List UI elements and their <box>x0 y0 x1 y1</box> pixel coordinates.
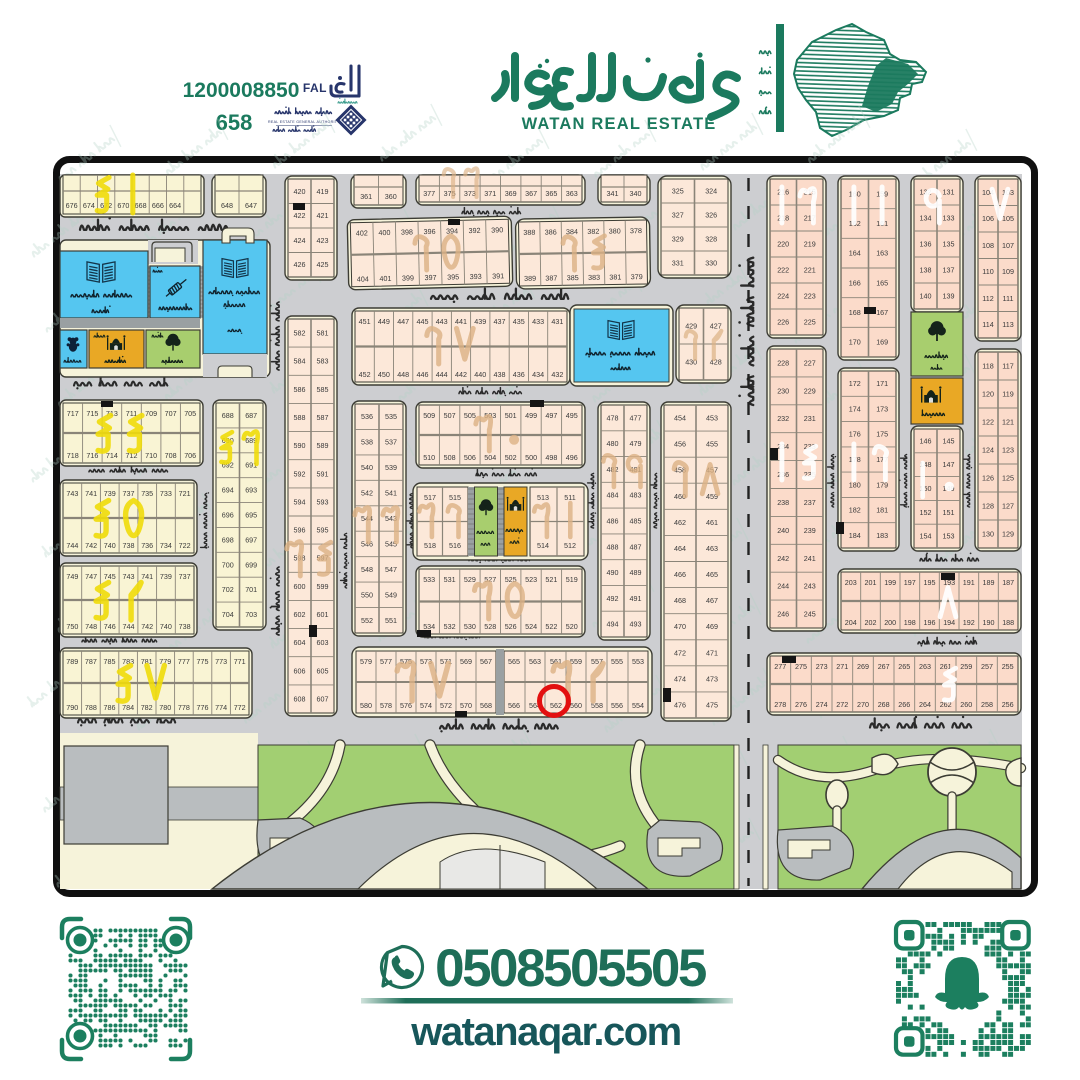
svg-text:182: 182 <box>849 506 861 515</box>
svg-text:397: 397 <box>424 273 436 282</box>
svg-text:400: 400 <box>378 228 390 237</box>
svg-text:194: 194 <box>943 618 955 627</box>
svg-text:224: 224 <box>777 292 789 301</box>
svg-text:741: 741 <box>141 572 153 581</box>
svg-text:746: 746 <box>104 622 116 631</box>
svg-text:389: 389 <box>524 274 536 283</box>
svg-text:775: 775 <box>197 657 209 666</box>
svg-text:710: 710 <box>145 451 157 460</box>
svg-text:398: 398 <box>401 227 413 236</box>
svg-text:603: 603 <box>317 638 329 647</box>
svg-text:435: 435 <box>513 317 525 326</box>
svg-text:401: 401 <box>379 274 391 283</box>
svg-text:202: 202 <box>865 618 877 627</box>
svg-text:477: 477 <box>630 413 642 422</box>
svg-text:647: 647 <box>245 201 257 210</box>
svg-text:588: 588 <box>294 413 306 422</box>
svg-text:465: 465 <box>706 570 718 579</box>
svg-text:138: 138 <box>920 266 932 275</box>
svg-text:328: 328 <box>705 235 717 244</box>
svg-text:219: 219 <box>804 240 816 249</box>
svg-text:426: 426 <box>294 260 306 269</box>
svg-text:568: 568 <box>480 701 492 710</box>
svg-text:698: 698 <box>222 535 234 544</box>
svg-text:553: 553 <box>632 657 644 666</box>
svg-text:199: 199 <box>884 578 896 587</box>
svg-text:784: 784 <box>122 703 134 712</box>
svg-text:381: 381 <box>609 272 621 281</box>
svg-text:221: 221 <box>804 266 816 275</box>
svg-text:741: 741 <box>85 489 97 498</box>
svg-text:600: 600 <box>294 582 306 591</box>
svg-text:687: 687 <box>245 411 257 420</box>
svg-text:220: 220 <box>777 240 789 249</box>
svg-text:361: 361 <box>360 192 372 201</box>
svg-text:780: 780 <box>159 703 171 712</box>
svg-text:107: 107 <box>1002 241 1014 250</box>
svg-text:699: 699 <box>245 560 257 569</box>
svg-text:243: 243 <box>804 582 816 591</box>
svg-text:676: 676 <box>66 201 78 210</box>
svg-text:452: 452 <box>359 370 371 379</box>
svg-text:772: 772 <box>234 703 246 712</box>
svg-text:707: 707 <box>165 409 177 418</box>
svg-text:587: 587 <box>317 413 329 422</box>
svg-text:556: 556 <box>611 701 623 710</box>
svg-text:191: 191 <box>963 578 975 587</box>
svg-text:125: 125 <box>1002 474 1014 483</box>
svg-text:737: 737 <box>179 572 191 581</box>
svg-text:538: 538 <box>361 438 373 447</box>
svg-text:591: 591 <box>317 469 329 478</box>
svg-text:586: 586 <box>294 385 306 394</box>
svg-text:740: 740 <box>104 541 116 550</box>
svg-text:695: 695 <box>245 511 257 520</box>
svg-text:388: 388 <box>523 228 535 237</box>
svg-text:267: 267 <box>878 662 890 671</box>
svg-text:668: 668 <box>135 201 147 210</box>
svg-text:172: 172 <box>849 379 861 388</box>
svg-text:WATAN REAL ESTATE: WATAN REAL ESTATE <box>522 115 717 133</box>
svg-text:442: 442 <box>455 370 467 379</box>
svg-text:127: 127 <box>1002 502 1014 511</box>
svg-text:386: 386 <box>545 227 557 236</box>
svg-text:717: 717 <box>67 409 79 418</box>
svg-text:269: 269 <box>857 662 869 671</box>
svg-text:531: 531 <box>444 575 456 584</box>
svg-text:505: 505 <box>464 411 476 420</box>
svg-text:392: 392 <box>469 226 481 235</box>
svg-text:494: 494 <box>607 620 619 629</box>
svg-text:735: 735 <box>141 489 153 498</box>
svg-text:574: 574 <box>420 701 432 710</box>
svg-text:607: 607 <box>317 694 329 703</box>
svg-text:739: 739 <box>104 489 116 498</box>
svg-text:536: 536 <box>361 412 373 421</box>
svg-text:152: 152 <box>920 508 932 517</box>
svg-text:529: 529 <box>464 575 476 584</box>
svg-text:606: 606 <box>294 666 306 675</box>
svg-text:589: 589 <box>317 441 329 450</box>
svg-text:114: 114 <box>982 320 993 329</box>
svg-text:737: 737 <box>123 489 135 498</box>
svg-text:1200008850: 1200008850 <box>183 79 300 102</box>
svg-text:113: 113 <box>1002 320 1013 329</box>
svg-text:121: 121 <box>1002 418 1014 427</box>
svg-text:742: 742 <box>85 541 97 550</box>
svg-text:581: 581 <box>317 329 329 338</box>
svg-text:688: 688 <box>222 411 234 420</box>
svg-text:228: 228 <box>777 358 789 367</box>
svg-text:499: 499 <box>525 411 537 420</box>
svg-text:744: 744 <box>66 541 78 550</box>
svg-text:785: 785 <box>104 657 116 666</box>
svg-text:454: 454 <box>674 414 686 423</box>
svg-text:578: 578 <box>380 701 392 710</box>
svg-text:448: 448 <box>397 370 409 379</box>
svg-text:425: 425 <box>317 260 329 269</box>
svg-text:198: 198 <box>904 618 916 627</box>
svg-text:438: 438 <box>494 370 506 379</box>
svg-text:584: 584 <box>294 357 306 366</box>
svg-text:583: 583 <box>317 357 329 366</box>
svg-text:548: 548 <box>361 565 373 574</box>
svg-text:697: 697 <box>245 535 257 544</box>
svg-text:596: 596 <box>294 526 306 535</box>
svg-text:445: 445 <box>417 317 429 326</box>
svg-text:139: 139 <box>943 292 955 301</box>
svg-text:123: 123 <box>1002 446 1014 455</box>
svg-text:422: 422 <box>294 211 306 220</box>
svg-text:277: 277 <box>774 662 786 671</box>
svg-text:399: 399 <box>402 273 414 282</box>
svg-text:229: 229 <box>804 386 816 395</box>
svg-text:512: 512 <box>564 541 576 550</box>
svg-text:151: 151 <box>943 508 955 517</box>
svg-text:515: 515 <box>449 493 461 502</box>
svg-text:329: 329 <box>672 235 684 244</box>
svg-text:128: 128 <box>982 502 994 511</box>
svg-text:404: 404 <box>357 274 369 283</box>
svg-text:168: 168 <box>849 308 861 317</box>
svg-text:326: 326 <box>705 211 717 220</box>
svg-text:176: 176 <box>849 430 861 439</box>
svg-text:108: 108 <box>982 241 994 250</box>
svg-text:260: 260 <box>960 700 972 709</box>
svg-text:231: 231 <box>804 414 816 423</box>
svg-text:521: 521 <box>545 575 557 584</box>
svg-text:439: 439 <box>474 317 486 326</box>
svg-text:738: 738 <box>179 622 191 631</box>
svg-text:131: 131 <box>943 188 955 197</box>
svg-text:165: 165 <box>876 278 888 287</box>
svg-text:593: 593 <box>317 497 329 506</box>
svg-text:227: 227 <box>804 358 816 367</box>
svg-text:664: 664 <box>169 201 181 210</box>
svg-text:700: 700 <box>222 560 234 569</box>
svg-text:274: 274 <box>816 700 828 709</box>
svg-text:486: 486 <box>607 517 619 526</box>
svg-text:341: 341 <box>607 189 619 198</box>
svg-text:340: 340 <box>630 189 642 198</box>
svg-text:256: 256 <box>1002 700 1014 709</box>
svg-text:420: 420 <box>294 187 306 196</box>
svg-text:738: 738 <box>123 541 135 550</box>
svg-text:174: 174 <box>849 404 861 413</box>
svg-text:264: 264 <box>919 700 931 709</box>
svg-text:495: 495 <box>566 411 578 420</box>
svg-text:195: 195 <box>924 578 936 587</box>
svg-text:263: 263 <box>919 662 931 671</box>
svg-text:119: 119 <box>1002 390 1013 399</box>
svg-text:324: 324 <box>705 187 717 196</box>
svg-text:105: 105 <box>1002 214 1014 223</box>
svg-text:670: 670 <box>117 201 129 210</box>
svg-text:567: 567 <box>480 657 492 666</box>
svg-text:511: 511 <box>564 493 575 502</box>
svg-text:594: 594 <box>294 497 306 506</box>
svg-text:120: 120 <box>982 390 994 399</box>
svg-text:268: 268 <box>878 700 890 709</box>
svg-text:382: 382 <box>587 227 599 236</box>
svg-text:502: 502 <box>505 453 517 462</box>
svg-text:136: 136 <box>920 240 932 249</box>
svg-text:190: 190 <box>983 618 995 627</box>
svg-text:777: 777 <box>178 657 190 666</box>
svg-text:570: 570 <box>460 701 472 710</box>
svg-text:433: 433 <box>532 317 544 326</box>
svg-text:111: 111 <box>1003 294 1014 303</box>
svg-text:467: 467 <box>706 596 718 605</box>
svg-text:696: 696 <box>222 511 234 520</box>
svg-text:706: 706 <box>184 451 196 460</box>
svg-text:455: 455 <box>706 440 718 449</box>
svg-text:508: 508 <box>444 453 456 462</box>
svg-text:540: 540 <box>361 463 373 472</box>
svg-text:509: 509 <box>423 411 435 420</box>
svg-text:360: 360 <box>385 192 397 201</box>
svg-text:237: 237 <box>804 498 816 507</box>
svg-text:513: 513 <box>537 493 549 502</box>
svg-text:504: 504 <box>484 453 496 462</box>
svg-text:325: 325 <box>672 187 684 196</box>
svg-text:437: 437 <box>494 317 506 326</box>
svg-text:461: 461 <box>706 518 718 527</box>
svg-text:579: 579 <box>360 657 372 666</box>
svg-text:497: 497 <box>545 411 557 420</box>
svg-text:549: 549 <box>385 590 397 599</box>
svg-text:743: 743 <box>66 489 78 498</box>
svg-text:390: 390 <box>491 225 503 234</box>
svg-text:130: 130 <box>982 530 994 539</box>
svg-text:535: 535 <box>385 412 397 421</box>
svg-text:257: 257 <box>981 662 993 671</box>
svg-text:468: 468 <box>674 596 686 605</box>
svg-text:246: 246 <box>777 610 789 619</box>
svg-text:469: 469 <box>706 622 718 631</box>
svg-text:226: 226 <box>777 318 789 327</box>
svg-text:245: 245 <box>804 610 816 619</box>
svg-text:472: 472 <box>674 648 686 657</box>
svg-text:242: 242 <box>777 554 789 563</box>
svg-text:369: 369 <box>505 189 517 198</box>
svg-text:577: 577 <box>380 657 392 666</box>
svg-text:786: 786 <box>104 703 116 712</box>
svg-text:117: 117 <box>1002 362 1013 371</box>
svg-text:164: 164 <box>849 249 861 258</box>
svg-text:563: 563 <box>529 657 541 666</box>
svg-text:181: 181 <box>876 506 888 515</box>
svg-text:750: 750 <box>66 622 78 631</box>
svg-text:171: 171 <box>876 379 888 388</box>
svg-text:748: 748 <box>85 622 97 631</box>
svg-text:705: 705 <box>184 409 196 418</box>
svg-text:275: 275 <box>795 662 807 671</box>
svg-text:743: 743 <box>123 572 135 581</box>
svg-text:520: 520 <box>566 622 578 631</box>
svg-text:703: 703 <box>245 610 257 619</box>
svg-text:771: 771 <box>234 657 246 666</box>
svg-text:FAL: FAL <box>303 81 327 95</box>
svg-text:490: 490 <box>607 568 619 577</box>
svg-text:721: 721 <box>179 489 191 498</box>
svg-text:541: 541 <box>385 489 397 498</box>
svg-text:517: 517 <box>424 493 436 502</box>
svg-text:451: 451 <box>359 317 371 326</box>
svg-text:539: 539 <box>385 463 397 472</box>
svg-text:363: 363 <box>566 189 578 198</box>
svg-text:466: 466 <box>674 570 686 579</box>
svg-text:601: 601 <box>317 610 329 619</box>
svg-text:133: 133 <box>943 214 955 223</box>
svg-text:506: 506 <box>464 453 476 462</box>
svg-text:510: 510 <box>423 453 435 462</box>
svg-text:331: 331 <box>672 259 684 268</box>
svg-text:528: 528 <box>484 622 496 631</box>
svg-text:147: 147 <box>943 460 955 469</box>
svg-text:137: 137 <box>943 266 955 275</box>
svg-text:498: 498 <box>545 453 557 462</box>
svg-text:450: 450 <box>378 370 390 379</box>
svg-text:145: 145 <box>943 436 955 445</box>
svg-text:560: 560 <box>570 701 582 710</box>
svg-text:790: 790 <box>66 703 78 712</box>
svg-text:774: 774 <box>215 703 227 712</box>
svg-text:480: 480 <box>607 439 619 448</box>
svg-text:371: 371 <box>484 189 496 198</box>
svg-text:200: 200 <box>884 618 896 627</box>
svg-text:745: 745 <box>104 572 116 581</box>
svg-text:423: 423 <box>317 236 329 245</box>
svg-text:327: 327 <box>672 211 684 220</box>
svg-text:562: 562 <box>550 701 562 710</box>
svg-text:273: 273 <box>816 662 828 671</box>
svg-text:222: 222 <box>777 266 789 275</box>
svg-text:776: 776 <box>197 703 209 712</box>
svg-text:276: 276 <box>795 700 807 709</box>
svg-text:702: 702 <box>222 585 234 594</box>
svg-text:789: 789 <box>66 657 78 666</box>
svg-text:491: 491 <box>630 594 642 603</box>
svg-text:522: 522 <box>545 622 557 631</box>
svg-text:493: 493 <box>630 620 642 629</box>
svg-text:184: 184 <box>849 531 861 540</box>
svg-text:109: 109 <box>1002 267 1014 276</box>
svg-text:watanaqar.com: watanaqar.com <box>410 1010 681 1054</box>
svg-text:708: 708 <box>165 451 177 460</box>
svg-text:533: 533 <box>423 575 435 584</box>
svg-text:188: 188 <box>1002 618 1014 627</box>
svg-text:473: 473 <box>706 674 718 683</box>
svg-text:478: 478 <box>607 413 619 422</box>
svg-text:470: 470 <box>674 622 686 631</box>
svg-text:507: 507 <box>444 411 456 420</box>
svg-text:259: 259 <box>960 662 972 671</box>
svg-text:255: 255 <box>1002 662 1014 671</box>
svg-text:595: 595 <box>317 526 329 535</box>
svg-text:704: 704 <box>222 610 234 619</box>
svg-text:330: 330 <box>705 259 717 268</box>
svg-text:441: 441 <box>455 317 467 326</box>
svg-text:534: 534 <box>423 622 435 631</box>
svg-text:110: 110 <box>982 267 993 276</box>
svg-text:419: 419 <box>317 187 329 196</box>
svg-text:112: 112 <box>982 294 993 303</box>
svg-text:436: 436 <box>513 370 525 379</box>
svg-text:189: 189 <box>983 578 995 587</box>
svg-text:718: 718 <box>67 451 79 460</box>
svg-text:201: 201 <box>865 578 877 587</box>
svg-text:449: 449 <box>378 317 390 326</box>
svg-text:516: 516 <box>449 541 461 550</box>
svg-text:590: 590 <box>294 441 306 450</box>
svg-text:782: 782 <box>141 703 153 712</box>
svg-text:487: 487 <box>630 542 642 551</box>
svg-text:744: 744 <box>123 622 135 631</box>
svg-text:582: 582 <box>294 329 306 338</box>
svg-text:387: 387 <box>545 273 557 282</box>
svg-text:271: 271 <box>836 662 848 671</box>
svg-text:580: 580 <box>360 701 372 710</box>
svg-text:492: 492 <box>607 594 619 603</box>
svg-text:740: 740 <box>160 622 172 631</box>
svg-text:496: 496 <box>566 453 578 462</box>
svg-text:542: 542 <box>361 489 373 498</box>
svg-text:175: 175 <box>876 430 888 439</box>
svg-text:154: 154 <box>920 532 932 541</box>
svg-text:608: 608 <box>294 694 306 703</box>
svg-text:380: 380 <box>609 226 621 235</box>
svg-text:391: 391 <box>492 271 504 280</box>
svg-text:471: 471 <box>706 648 718 657</box>
svg-text:385: 385 <box>567 273 579 282</box>
svg-text:709: 709 <box>145 409 157 418</box>
svg-text:424: 424 <box>294 236 306 245</box>
svg-text:524: 524 <box>525 622 537 631</box>
svg-text:747: 747 <box>85 572 97 581</box>
svg-text:602: 602 <box>294 610 306 619</box>
svg-text:238: 238 <box>777 498 789 507</box>
svg-text:749: 749 <box>66 572 78 581</box>
svg-text:773: 773 <box>215 657 227 666</box>
svg-text:693: 693 <box>245 486 257 495</box>
svg-text:203: 203 <box>845 578 857 587</box>
svg-text:240: 240 <box>777 526 789 535</box>
svg-text:183: 183 <box>876 531 888 540</box>
svg-text:434: 434 <box>532 370 544 379</box>
svg-text:658: 658 <box>216 110 253 135</box>
svg-text:365: 365 <box>545 189 557 198</box>
